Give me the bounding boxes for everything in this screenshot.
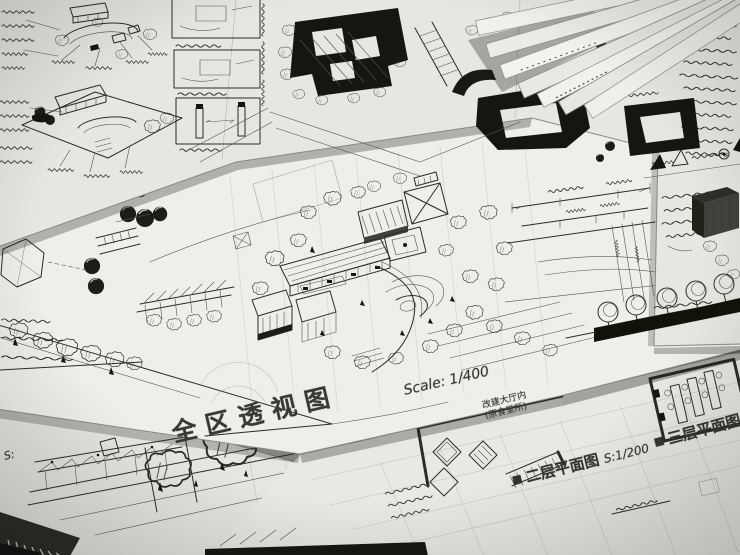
section-scale-prefix: S: (2, 448, 16, 463)
filled-square-icon: ■ (510, 472, 523, 487)
sketch-linework (0, 0, 740, 555)
photo-vignette (0, 0, 740, 555)
photo-architectural-sketches: 全区透视图 Scale: 1/400 改建大厅内 (原食堂所) ■二层平面图S:… (0, 0, 740, 555)
filled-square-icon: ■ (652, 434, 665, 449)
